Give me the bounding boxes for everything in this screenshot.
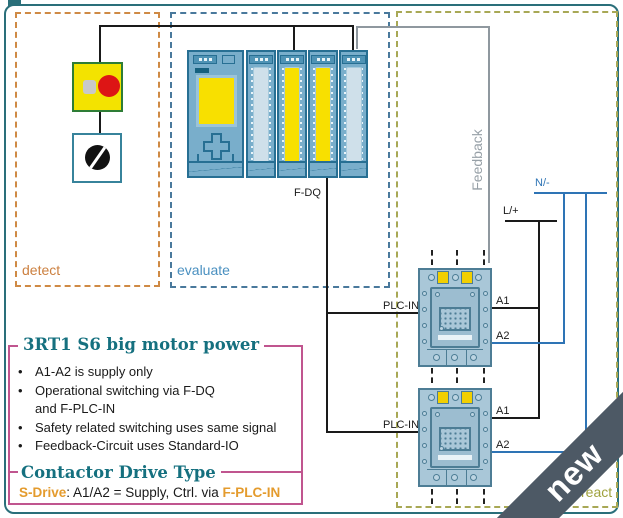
wire-c1-a1 — [492, 307, 540, 309]
info-bullet-list: •A1-A2 is supply only •Operational switc… — [10, 363, 301, 456]
cpu-slot — [222, 55, 235, 64]
plc-cpu-module — [187, 50, 244, 178]
contactor-1 — [418, 268, 492, 367]
cpu-status-bar — [195, 68, 209, 73]
wire-l-drop — [538, 220, 540, 419]
bullet-item: •A1-A2 is supply only — [18, 363, 301, 382]
detect-region-label: detect — [22, 262, 60, 278]
plc-standard-io-module — [339, 50, 368, 178]
plc-io-module-1 — [246, 50, 276, 178]
wire-feedback-left — [356, 27, 358, 49]
fdq-module-insert — [315, 67, 331, 163]
wire-top-bus — [99, 25, 354, 27]
cpu-led-block — [193, 55, 217, 64]
contactor1-a2-label: A2 — [496, 330, 509, 342]
wire-n-drop-2 — [585, 192, 587, 453]
safety-circuit-diagram: detect evaluate react — [0, 0, 623, 518]
fdq-label: F-DQ — [294, 187, 321, 199]
wire-feedback-top — [356, 26, 490, 28]
bullet-item: •Safety related switching uses same sign… — [18, 419, 301, 438]
wire-plc-in-1 — [326, 312, 420, 314]
estop-pad — [83, 80, 96, 94]
wire-estop-up — [99, 25, 101, 62]
wire-fdq-down — [326, 178, 328, 432]
wire-drop-fdi — [293, 25, 295, 50]
plc-in-label-2: PLC-IN — [383, 419, 419, 431]
l-plus-label: L/+ — [503, 205, 519, 217]
plc-rack — [187, 50, 372, 178]
contactor2-a2-label: A2 — [496, 439, 509, 451]
wire-plc-in-2 — [326, 431, 420, 433]
selector-knob-icon — [85, 145, 110, 170]
bullet-item: •Operational switching via F-DQ and F-PL… — [18, 382, 301, 419]
n-minus-label: N/- — [535, 177, 550, 189]
plc-in-label-1: PLC-IN — [383, 300, 419, 312]
estop-red-button-icon — [98, 75, 120, 97]
info-subtitle-row: Contactor Drive Type — [10, 463, 301, 482]
contactor1-a1-label: A1 — [496, 295, 509, 307]
io-module-insert — [253, 67, 269, 163]
wire-n-rail — [534, 192, 607, 194]
info-subtitle: Contactor Drive Type — [18, 463, 221, 482]
contactor2-a1-label: A1 — [496, 405, 509, 417]
wire-c2-a1 — [492, 417, 540, 419]
bullet-item: •Feedback-Circuit uses Standard-IO — [18, 437, 301, 456]
info-box: 3RT1 S6 big motor power •A1-A2 is supply… — [8, 345, 303, 505]
wire-drop-di — [352, 25, 354, 50]
emergency-stop-icon — [72, 62, 123, 112]
info-box-title: 3RT1 S6 big motor power — [18, 335, 264, 354]
drive-type-highlight: F-PLC-IN — [223, 485, 281, 500]
wire-n-drop-1 — [563, 192, 565, 344]
fdi-module-insert — [284, 67, 300, 163]
cpu-display — [196, 75, 237, 127]
selector-switch-icon — [72, 133, 122, 183]
cpu-wiring-duct — [189, 161, 242, 176]
drive-type-label: S-Drive — [19, 485, 66, 500]
feedback-label: Feedback — [469, 100, 489, 220]
contactor-2 — [418, 388, 492, 487]
wire-estop-selector — [99, 112, 101, 133]
plc-fdi-module — [277, 50, 307, 178]
corner-accent — [8, 0, 21, 6]
standard-io-insert — [346, 67, 362, 163]
drive-type-line: S-Drive: A1/A2 = Supply, Ctrl. via F-PLC… — [19, 485, 301, 500]
evaluate-region-label: evaluate — [177, 262, 230, 278]
plc-fdq-module — [308, 50, 338, 178]
wire-l-rail — [505, 220, 557, 222]
wire-c1-a2 — [492, 342, 565, 344]
